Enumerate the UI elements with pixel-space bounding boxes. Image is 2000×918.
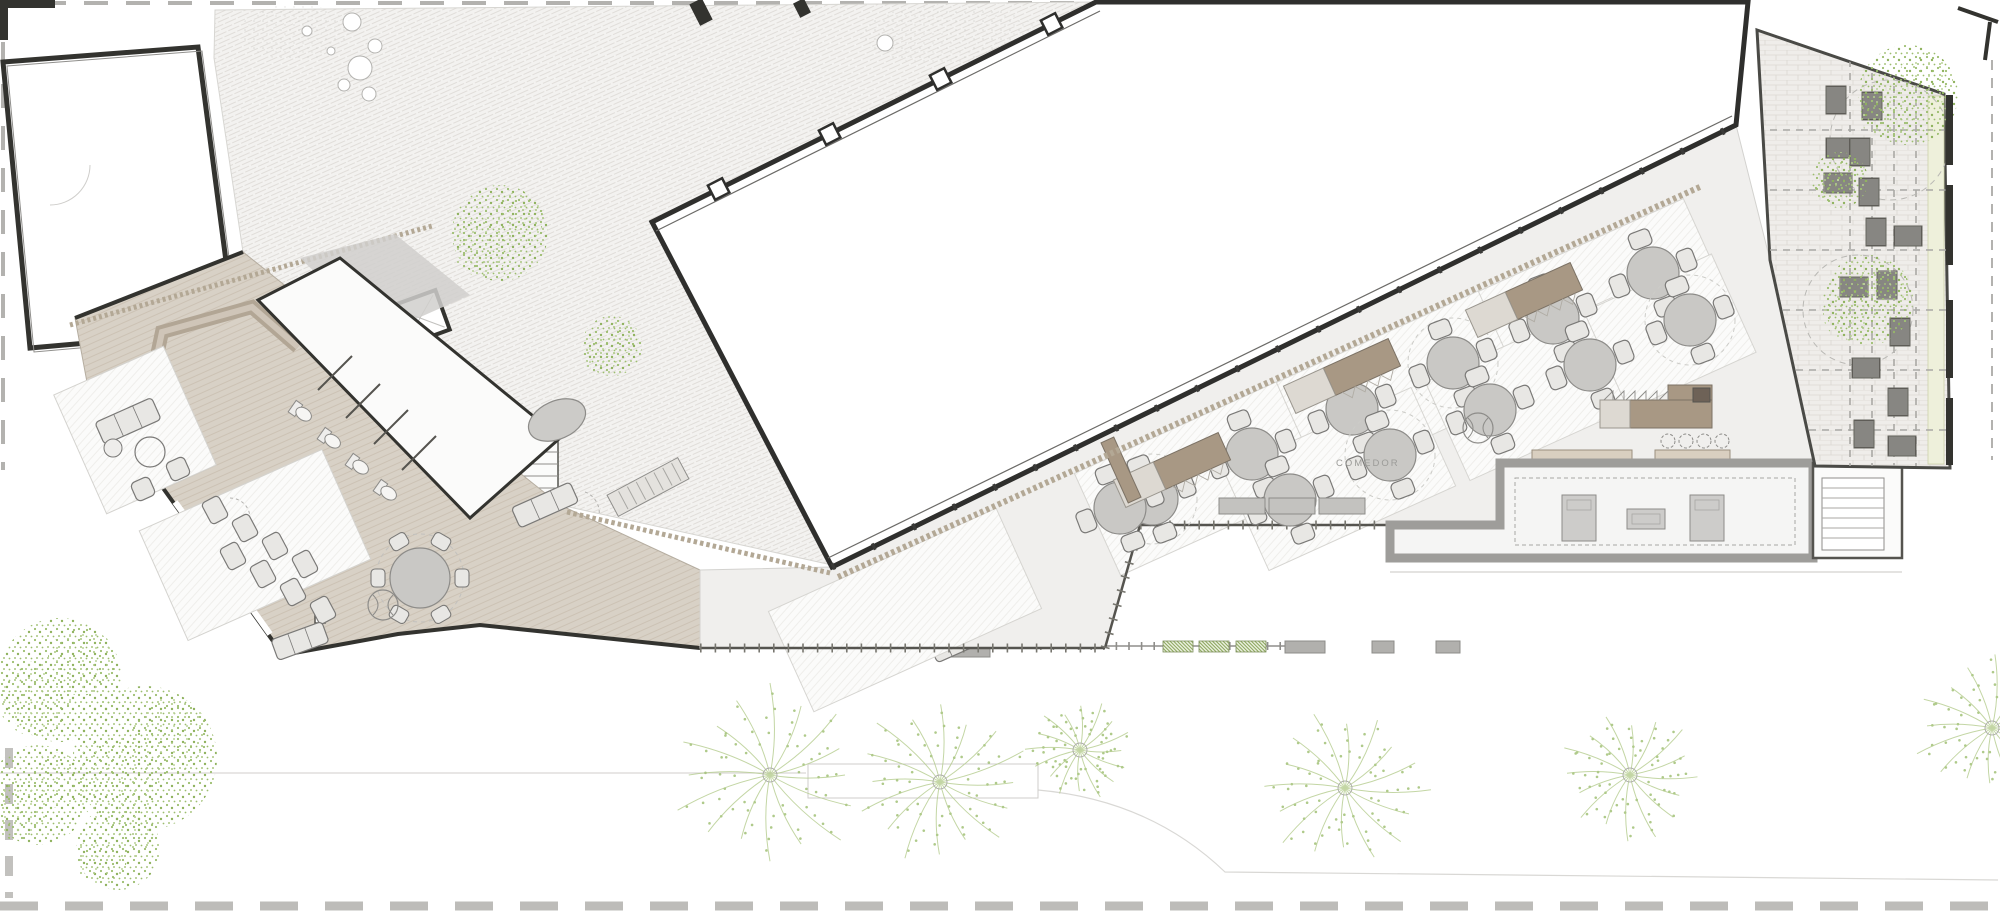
room-label-comedor: COMEDOR bbox=[1336, 458, 1400, 469]
palm-dot bbox=[882, 782, 885, 785]
palm-dot bbox=[1677, 774, 1680, 777]
palm-dot bbox=[1096, 785, 1099, 788]
palm-dot bbox=[983, 744, 986, 747]
palm-dot bbox=[1383, 825, 1386, 828]
palm-dot bbox=[826, 747, 829, 750]
palm-dot bbox=[702, 802, 705, 805]
palm-frond bbox=[1341, 788, 1345, 847]
palm-dot bbox=[725, 756, 728, 759]
sun-lounger bbox=[1888, 436, 1916, 456]
palm-dot bbox=[1065, 782, 1068, 785]
palm-dot bbox=[960, 756, 963, 759]
palm-dot bbox=[1632, 826, 1635, 829]
palm-dot bbox=[1409, 766, 1412, 769]
palm-dot bbox=[908, 780, 911, 783]
palm-dot bbox=[1648, 813, 1651, 816]
palm-dot bbox=[895, 800, 898, 803]
palm-dot bbox=[1286, 762, 1289, 765]
palm-dot bbox=[958, 726, 961, 729]
palm-dot bbox=[1986, 758, 1989, 761]
palm-frond bbox=[1345, 763, 1415, 788]
palm-dot bbox=[969, 808, 972, 811]
planter-circle bbox=[327, 47, 335, 55]
palm-dot bbox=[1084, 725, 1087, 728]
palm-dot bbox=[1065, 761, 1068, 764]
palm-dot bbox=[1059, 787, 1062, 790]
palm-dot bbox=[1624, 811, 1627, 814]
palm-dot bbox=[1065, 721, 1068, 724]
palm-dot bbox=[871, 754, 874, 757]
street-trees bbox=[0, 618, 217, 890]
courtyard-tree bbox=[452, 185, 548, 281]
palm-frond bbox=[1078, 750, 1080, 791]
sun-lounger bbox=[1894, 226, 1922, 246]
palm-dot bbox=[708, 822, 711, 825]
palm-dot bbox=[804, 734, 807, 737]
palm-dot bbox=[1591, 738, 1594, 741]
palm-frond bbox=[1951, 688, 1992, 728]
palm-dot bbox=[941, 815, 944, 818]
palm-dot bbox=[1594, 796, 1597, 799]
palm-dot bbox=[897, 826, 900, 829]
palm-dot bbox=[690, 743, 693, 746]
palm-dot bbox=[1308, 772, 1311, 775]
palm-dot bbox=[751, 731, 754, 734]
palm-frond bbox=[1564, 748, 1630, 775]
planter-circle bbox=[302, 26, 312, 36]
palm-dot bbox=[1369, 771, 1372, 774]
palm-frond bbox=[1580, 775, 1630, 793]
planter-circle bbox=[368, 39, 382, 53]
palm-dot bbox=[1038, 732, 1041, 735]
palm-dot bbox=[1080, 768, 1083, 771]
palm-dot bbox=[915, 839, 918, 842]
palm-dot bbox=[1598, 784, 1601, 787]
palm-frond bbox=[940, 782, 965, 840]
palm-dot bbox=[1639, 749, 1642, 752]
palm-dot bbox=[724, 787, 727, 790]
tree-canopy bbox=[28, 753, 83, 808]
palm-dot bbox=[884, 729, 887, 732]
palm-dot bbox=[938, 824, 941, 827]
palm-dot bbox=[1321, 834, 1324, 837]
kitchen-annex bbox=[1813, 463, 1902, 558]
palm-dot bbox=[1977, 684, 1980, 687]
palm-dot bbox=[705, 750, 708, 753]
palm-dot bbox=[1079, 709, 1082, 712]
palm-dot bbox=[1641, 740, 1644, 743]
palm-dot bbox=[883, 777, 886, 780]
palm-dot bbox=[1574, 752, 1577, 755]
palm-dot bbox=[988, 828, 991, 831]
palm-dot bbox=[797, 828, 800, 831]
palm-dot bbox=[897, 743, 900, 746]
annex-stairs bbox=[1822, 478, 1884, 550]
palm-dot bbox=[1395, 808, 1398, 811]
palm-dot bbox=[1597, 771, 1600, 774]
palm-dot bbox=[911, 771, 914, 774]
palm-dot bbox=[1992, 671, 1995, 674]
palm-dot bbox=[1328, 826, 1331, 829]
palm-dot bbox=[943, 725, 946, 728]
palm-dot bbox=[1370, 797, 1373, 800]
palm-frond bbox=[1630, 775, 1673, 817]
tree-canopy bbox=[490, 192, 543, 245]
palm-dot bbox=[1042, 751, 1045, 754]
palm-dot bbox=[1097, 791, 1100, 794]
palm-dot bbox=[718, 798, 721, 801]
palm-dot bbox=[1658, 803, 1661, 806]
palm-dot bbox=[822, 730, 825, 733]
palm-dot bbox=[1417, 786, 1420, 789]
topright-wall-stub bbox=[1958, 8, 1998, 60]
palm-dot bbox=[1303, 817, 1306, 820]
sun-lounger bbox=[1852, 358, 1880, 378]
palm-dot bbox=[1604, 816, 1607, 819]
palm-dot bbox=[825, 794, 828, 797]
palm-dot bbox=[977, 767, 980, 770]
palm-dot bbox=[1110, 733, 1113, 736]
palm-dot bbox=[805, 788, 808, 791]
terrace-tree bbox=[1812, 152, 1868, 208]
palm-dot bbox=[998, 755, 1001, 758]
palm-dot bbox=[770, 826, 773, 829]
street-hedge bbox=[1236, 641, 1266, 652]
palm-dot bbox=[745, 752, 748, 755]
buffet-end bbox=[1600, 400, 1630, 428]
palm-dot bbox=[1063, 759, 1066, 762]
palm-dot bbox=[768, 838, 771, 841]
palm-dot bbox=[1588, 757, 1591, 760]
palm-dot bbox=[1102, 734, 1105, 737]
palm-dot bbox=[956, 736, 959, 739]
palm-dot bbox=[910, 722, 913, 725]
palm-dot bbox=[1348, 750, 1351, 753]
palm-dot bbox=[1125, 735, 1128, 738]
palm-dot bbox=[736, 705, 739, 708]
palm-tree bbox=[862, 704, 1024, 858]
palm-dot bbox=[1091, 712, 1094, 715]
palm-tree bbox=[1264, 714, 1431, 857]
palm-dot bbox=[1994, 683, 1997, 686]
palm-dot bbox=[954, 746, 957, 749]
sun-lounger bbox=[1826, 86, 1846, 114]
palm-dot bbox=[1600, 762, 1603, 765]
tree-canopy bbox=[131, 697, 210, 776]
street-area bbox=[0, 641, 1998, 880]
palm-dot bbox=[724, 734, 727, 737]
palm-frond bbox=[1264, 784, 1345, 788]
palm-dot bbox=[1595, 808, 1598, 811]
palm-frond bbox=[683, 742, 770, 775]
palm-dot bbox=[1656, 755, 1659, 758]
palm-dot bbox=[1320, 723, 1323, 726]
palm-dot bbox=[963, 833, 966, 836]
palm-dot bbox=[1952, 689, 1955, 692]
wall-stub-b bbox=[0, 0, 8, 40]
palm-dot bbox=[1100, 741, 1103, 744]
palm-dot bbox=[1672, 731, 1675, 734]
palm-frond bbox=[913, 720, 940, 782]
palm-dot bbox=[1019, 756, 1022, 759]
east-wall-segment bbox=[1946, 398, 1953, 465]
palm-dot bbox=[781, 804, 784, 807]
palm-dot bbox=[1991, 778, 1994, 781]
tree-canopy bbox=[1859, 262, 1909, 312]
palm-dot bbox=[798, 771, 801, 774]
palm-dot bbox=[1096, 764, 1099, 767]
palm-dot bbox=[1290, 837, 1293, 840]
palm-dot bbox=[1377, 819, 1380, 822]
palm-dot bbox=[1377, 799, 1380, 802]
bench bbox=[1319, 498, 1365, 514]
palm-dot bbox=[1673, 762, 1676, 765]
palm-dot bbox=[1367, 839, 1370, 842]
palm-dot bbox=[1369, 848, 1372, 851]
curb-line-east bbox=[1038, 790, 1998, 880]
palm-dot bbox=[1969, 704, 1972, 707]
palm-dot bbox=[1964, 744, 1967, 747]
palm-frond bbox=[888, 782, 940, 829]
palm-dot bbox=[1331, 754, 1334, 757]
palm-dot bbox=[940, 712, 943, 715]
palm-dot bbox=[1379, 756, 1382, 759]
palm-dot bbox=[1106, 750, 1109, 753]
palm-dot bbox=[1003, 780, 1006, 783]
palm-dot bbox=[789, 733, 792, 736]
palm-dot bbox=[1105, 737, 1108, 740]
palm-dot bbox=[1572, 772, 1575, 775]
palm-dot bbox=[934, 731, 937, 734]
palm-dot bbox=[1606, 727, 1609, 730]
street-bench bbox=[1436, 641, 1460, 653]
palm-dot bbox=[845, 804, 848, 807]
palm-dot bbox=[1651, 829, 1654, 832]
palm-dot bbox=[1055, 725, 1058, 728]
palm-dot bbox=[922, 829, 925, 832]
palm-frond bbox=[1927, 724, 1992, 728]
palm-dot bbox=[835, 773, 838, 776]
palm-dot bbox=[774, 708, 777, 711]
palm-dot bbox=[1117, 765, 1120, 768]
palm-dot bbox=[1647, 781, 1650, 784]
palm-dot bbox=[1396, 788, 1399, 791]
palm-dot bbox=[933, 843, 936, 846]
palm-dot bbox=[771, 692, 774, 695]
palm-dot bbox=[1933, 703, 1936, 706]
palm-frond bbox=[1345, 720, 1377, 788]
palm-dot bbox=[982, 821, 985, 824]
palm-dot bbox=[765, 849, 768, 852]
palm-dot bbox=[977, 753, 980, 756]
palm-dot bbox=[810, 758, 813, 761]
palm-dot bbox=[1584, 774, 1587, 777]
palm-dot bbox=[720, 756, 723, 759]
palm-dot bbox=[1374, 775, 1377, 778]
palm-dot bbox=[968, 792, 971, 795]
palm-dot bbox=[1657, 759, 1660, 762]
palm-dot bbox=[830, 720, 833, 723]
palm-frond bbox=[1345, 788, 1374, 857]
palm-dot bbox=[948, 805, 951, 808]
palm-dot bbox=[1070, 728, 1073, 731]
palm-dot bbox=[1343, 813, 1346, 816]
palm-dot bbox=[814, 814, 817, 817]
palm-dot bbox=[1075, 777, 1078, 780]
palm-frond bbox=[862, 782, 940, 811]
palm-dot bbox=[975, 815, 978, 818]
palm-dot bbox=[1302, 831, 1305, 834]
palm-dot bbox=[1612, 737, 1615, 740]
palm-dot bbox=[1361, 745, 1364, 748]
palm-dot bbox=[1955, 728, 1958, 731]
palm-dot bbox=[765, 716, 768, 719]
palm-dot bbox=[1113, 748, 1116, 751]
palm-dot bbox=[1056, 775, 1059, 778]
palm-dot bbox=[1943, 726, 1946, 729]
palm-dot bbox=[1957, 723, 1960, 726]
palm-dot bbox=[1110, 749, 1113, 752]
palm-frond bbox=[737, 701, 770, 775]
pouf bbox=[104, 439, 122, 457]
east-wall-segment bbox=[1946, 300, 1953, 378]
palm-dot bbox=[1314, 842, 1317, 845]
sun-lounger bbox=[1888, 388, 1908, 416]
palm-dot bbox=[1651, 764, 1654, 767]
palm-dot bbox=[805, 806, 808, 809]
bench bbox=[1219, 498, 1265, 514]
palm-frond bbox=[940, 782, 1013, 785]
palm-dot bbox=[1668, 790, 1671, 793]
street-hedge bbox=[1163, 641, 1193, 652]
palm-frond bbox=[1968, 668, 1992, 728]
street-tree bbox=[76, 806, 160, 890]
palm-dot bbox=[1990, 658, 1993, 661]
palm-frond bbox=[1065, 715, 1080, 750]
palm-dot bbox=[1297, 767, 1300, 770]
planter-circle bbox=[343, 13, 361, 31]
palm-dot bbox=[923, 744, 926, 747]
dining-table bbox=[1664, 294, 1716, 346]
palm-dot bbox=[1306, 801, 1309, 804]
palm-dot bbox=[1346, 842, 1349, 845]
palm-dot bbox=[1931, 744, 1934, 747]
palm-dot bbox=[1052, 725, 1055, 728]
palm-dot bbox=[896, 814, 899, 817]
palm-dot bbox=[744, 718, 747, 721]
palm-dot bbox=[1608, 783, 1611, 786]
palm-dot bbox=[700, 777, 703, 780]
palm-dot bbox=[1604, 791, 1607, 794]
palm-dot bbox=[1994, 771, 1997, 774]
palm-dot bbox=[1297, 742, 1300, 745]
palm-dot bbox=[1654, 728, 1657, 731]
palm-dot bbox=[1649, 793, 1652, 796]
sun-lounger bbox=[1854, 420, 1874, 448]
palm-dot bbox=[1970, 763, 1973, 766]
palm-dot bbox=[818, 752, 821, 755]
palm-dot bbox=[1667, 739, 1670, 742]
palm-dot bbox=[1287, 788, 1290, 791]
palm-dot bbox=[1055, 740, 1058, 743]
planter-circle bbox=[348, 56, 372, 80]
palm-dot bbox=[898, 765, 901, 768]
palm-frond bbox=[770, 749, 839, 775]
palm-dot bbox=[1608, 752, 1611, 755]
palm-dot bbox=[1340, 755, 1343, 758]
palm-dot bbox=[1971, 674, 1974, 677]
palm-dot bbox=[815, 791, 818, 794]
palm-dot bbox=[744, 832, 747, 835]
palm-tree bbox=[1564, 717, 1697, 841]
palm-dot bbox=[1317, 729, 1320, 732]
palm-dot bbox=[1989, 751, 1992, 754]
palm-frond bbox=[1314, 714, 1345, 788]
palm-dot bbox=[704, 772, 707, 775]
palm-dot bbox=[1402, 811, 1405, 814]
palm-frond bbox=[770, 775, 801, 844]
palm-dot bbox=[1653, 737, 1656, 740]
palm-dot bbox=[1104, 774, 1107, 777]
palm-dot bbox=[686, 805, 689, 808]
palm-dot bbox=[1377, 728, 1380, 731]
tree-canopy bbox=[1834, 156, 1865, 187]
palm-dot bbox=[1611, 724, 1614, 727]
palm-dot bbox=[1374, 764, 1377, 767]
palm-dot bbox=[988, 761, 991, 764]
palm-dot bbox=[817, 776, 820, 779]
palm-dot bbox=[1070, 777, 1073, 780]
palm-dot bbox=[1045, 761, 1048, 764]
palm-dot bbox=[822, 822, 825, 825]
palm-frond bbox=[1345, 747, 1392, 788]
palm-dot bbox=[793, 709, 796, 712]
palm-dot bbox=[1979, 699, 1982, 702]
palm-dot bbox=[1600, 745, 1603, 748]
palm-dot bbox=[1401, 771, 1404, 774]
palm-dot bbox=[1588, 786, 1591, 789]
palm-dot bbox=[1075, 727, 1078, 730]
palm-dot bbox=[1383, 748, 1386, 751]
east-wall-segment bbox=[1946, 185, 1953, 265]
tip-table-chair bbox=[455, 569, 469, 587]
palm-dot bbox=[916, 803, 919, 806]
tree-canopy bbox=[606, 321, 639, 354]
palm-frond bbox=[1280, 788, 1345, 811]
palm-dot bbox=[949, 812, 952, 815]
palm-dot bbox=[1653, 798, 1656, 801]
palm-dot bbox=[1371, 812, 1374, 815]
bench bbox=[1269, 498, 1315, 514]
palm-dot bbox=[1685, 772, 1688, 775]
palm-dot bbox=[936, 834, 939, 837]
palm-dot bbox=[1679, 757, 1682, 760]
palm-dot bbox=[1661, 776, 1664, 779]
dining-table bbox=[1464, 384, 1516, 436]
palm-dot bbox=[937, 744, 940, 747]
palm-dot bbox=[768, 732, 771, 735]
palm-dot bbox=[1294, 803, 1297, 806]
palm-dot bbox=[796, 745, 799, 748]
palm-frond bbox=[1941, 728, 1992, 772]
palm-dot bbox=[994, 803, 997, 806]
palm-dot bbox=[1047, 736, 1050, 739]
street-bench bbox=[1372, 641, 1394, 653]
palm-dot bbox=[1661, 747, 1664, 750]
palm-dot bbox=[1945, 741, 1948, 744]
palm-dot bbox=[1610, 810, 1613, 813]
planter-circle bbox=[877, 35, 893, 51]
